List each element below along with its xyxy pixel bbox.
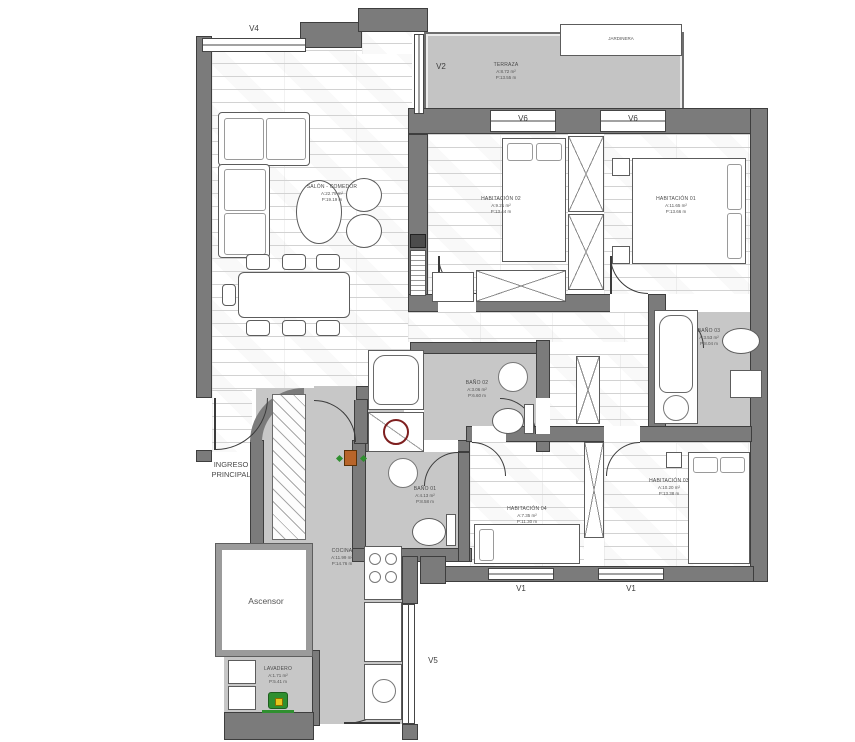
kitchen-perimeter: P:14.76 m [300, 561, 384, 567]
bedroom3-pillow-1 [693, 457, 718, 473]
wall-bath2-top [410, 342, 550, 354]
bath1-name: BAÑO 01 [380, 486, 470, 493]
bedroom1-nightstand-1 [612, 158, 630, 176]
armchair-2 [346, 214, 382, 248]
dining-chair-5 [282, 320, 306, 336]
door-gap-bath2 [536, 398, 550, 434]
bath1-perimeter: P:8.58 m [380, 499, 470, 505]
door-gap-entry [196, 398, 212, 450]
bedroom1-nightstand-2 [612, 246, 630, 264]
dining-chair-6 [316, 320, 340, 336]
planter-label: JARDINERA [560, 36, 682, 42]
bath2-name: BAÑO 02 [432, 380, 522, 387]
entrance-label-line1: INGRESO [200, 460, 262, 470]
bath2-tub [368, 350, 424, 410]
bath3-perimeter: P:8.04 m [664, 341, 754, 347]
bedroom2-label: HABITACIÓN 02 A:9.21 m² P:13.44 m [446, 196, 556, 214]
terrace-name: TERRAZA [456, 62, 556, 69]
bath3-tub-inner [659, 315, 693, 393]
bedroom4-name: HABITACIÓN 04 [472, 506, 582, 513]
window-label-v1a: V1 [488, 584, 554, 593]
washer-icon-base [262, 710, 294, 713]
window-label-v6b: V6 [600, 114, 666, 123]
shower-tray [368, 412, 424, 452]
bedroom3-closet [584, 442, 604, 538]
laundry-label: LAVADERO A:1.71 m² P:5.41 m [246, 666, 310, 684]
window-v1b [598, 568, 664, 580]
bedroom3-nightstand [666, 452, 682, 468]
window-label-v2: V2 [428, 62, 454, 71]
wall-wing-right-bottom [402, 724, 418, 740]
entry-door-leaf [214, 398, 216, 450]
bedroom2-closet-row [476, 270, 566, 302]
thermostat-icon [344, 450, 357, 466]
living-room-perimeter: P:19.19 m [282, 197, 382, 203]
bedroom2-closet-small [432, 272, 474, 302]
wall-laundry-bottom-block [224, 712, 314, 740]
laundry-name: LAVADERO [246, 666, 310, 673]
bedroom3-label: HABITACIÓN 03 A:10.20 m² P:13.38 m [614, 478, 724, 496]
laundry-door-leaf [344, 722, 400, 724]
window-label-v4: V4 [240, 24, 268, 33]
bath3-cabinet [730, 370, 762, 398]
laundry-perimeter: P:5.41 m [246, 679, 310, 685]
sofa-vertical [218, 164, 270, 258]
bedroom3-bed [688, 452, 750, 564]
door-gap-bedroom1 [610, 294, 648, 312]
bedroom4-label: HABITACIÓN 04 A:7.35 m² P:11.30 m [472, 506, 582, 524]
kitchen-counter [364, 602, 402, 662]
entrance-label-line2: PRINCIPAL [200, 470, 262, 480]
bath3-label: BAÑO 03 A:3.53 m² P:8.04 m [664, 328, 754, 346]
window-label-v6a: V6 [490, 114, 556, 123]
burner-2 [385, 553, 397, 565]
wall-top [358, 8, 428, 32]
dining-chair-4 [246, 320, 270, 336]
window-v4 [202, 38, 306, 52]
entrance-label: INGRESO PRINCIPAL [200, 460, 262, 480]
living-room-label: SALÓN - COMEDOR A:22.79 m² P:19.19 m [282, 184, 382, 202]
hall-closet [576, 356, 600, 424]
window-v2 [414, 34, 424, 114]
window-label-v5: V5 [420, 656, 446, 665]
sofa-horizontal [218, 112, 310, 166]
bath2-perimeter: P:6.60 m [432, 393, 522, 399]
kitchen-sink-bowl [372, 679, 396, 703]
bath2-toilet-tank [524, 404, 534, 434]
bedroom3-name: HABITACIÓN 03 [614, 478, 724, 485]
bedroom1-name: HABITACIÓN 01 [622, 196, 730, 203]
bedroom2-perimeter: P:13.44 m [446, 209, 556, 215]
kitchen-name: COCINA [300, 548, 384, 555]
sofa-cushion-4 [224, 213, 266, 255]
window-v5 [402, 604, 415, 724]
sofa-cushion-2 [266, 118, 306, 160]
window-v1a [488, 568, 554, 580]
bedroom1-pillow-2 [727, 213, 742, 259]
living-room-name: SALÓN - COMEDOR [282, 184, 382, 191]
bath3-tub-drain [663, 395, 689, 421]
bath1-toilet-bowl [412, 518, 446, 546]
dining-table [238, 272, 350, 318]
dining-chair-1 [246, 254, 270, 270]
bedroom2-pillow-2 [536, 143, 562, 161]
bath3-name: BAÑO 03 [664, 328, 754, 335]
bath2-toilet-bowl [492, 408, 524, 434]
bath2-tub-inner [373, 355, 419, 405]
wall-wing-right [402, 556, 418, 604]
bath1-sink [388, 458, 418, 488]
bedroom3-perimeter: P:13.38 m [614, 491, 724, 497]
terrace-label: TERRAZA A:8.72 m² P:13.55 m [456, 62, 556, 80]
bedroom4-perimeter: P:11.30 m [472, 519, 582, 525]
door-gap-bedroom3 [604, 426, 640, 442]
dining-chair-side [222, 284, 236, 306]
bedroom1-label: HABITACIÓN 01 A:11.65 m² P:13.66 m [622, 196, 730, 214]
electrical-box [410, 234, 426, 248]
wall-left-upper [196, 36, 212, 398]
bedroom2-pillow-1 [507, 143, 533, 161]
bedroom2-name: HABITACIÓN 02 [446, 196, 556, 203]
dining-chair-2 [282, 254, 306, 270]
bedroom1-perimeter: P:13.66 m [622, 209, 730, 215]
kitchen-pantry-hatch [272, 394, 306, 540]
burner-3 [369, 571, 381, 583]
bedroom4-pillow [479, 529, 494, 561]
door-gap-bath1 [424, 440, 458, 452]
bedroom4-bed [474, 524, 580, 564]
kitchen-sink-unit [364, 664, 402, 720]
door-gap-kitchen [314, 386, 356, 400]
wall-bath1-right [458, 452, 470, 562]
bath2-label: BAÑO 02 A:3.06 m² P:6.60 m [432, 380, 522, 398]
dining-chair-3 [316, 254, 340, 270]
kitchen-label: COCINA A:11.99 m² P:14.76 m [300, 548, 384, 566]
bath1-label: BAÑO 01 A:4.13 m² P:8.58 m [380, 486, 470, 504]
washer-icon [268, 692, 288, 709]
living-room-floor-top-notch [362, 30, 412, 54]
floor-plan: V4 V2 V6 V6 V1 V1 V5 TERRAZA A:8.72 m² P… [0, 0, 855, 742]
shower-no-symbol-icon [383, 419, 409, 445]
corridor-floor [408, 312, 650, 342]
burner-4 [385, 571, 397, 583]
wall-corner-step [420, 556, 446, 584]
elevator-label: Ascensor [224, 596, 308, 606]
bedroom2-wardrobe-2 [568, 214, 604, 290]
planter-name: JARDINERA [560, 36, 682, 42]
window-label-v1b: V1 [598, 584, 664, 593]
sofa-cushion-3 [224, 169, 266, 211]
wall-entry-boundary [250, 440, 264, 546]
wall-top-step [300, 22, 362, 48]
radiator [410, 250, 426, 296]
wall-bedrooms-top [408, 108, 754, 134]
washer-icon-center [275, 698, 283, 706]
bedroom3-pillow-2 [720, 457, 745, 473]
sofa-cushion-1 [224, 118, 264, 160]
bath1-toilet-tank [446, 514, 456, 546]
bedroom2-wardrobe-1 [568, 136, 604, 212]
terrace-perimeter: P:13.55 m [456, 75, 556, 81]
laundry-appliance-2 [228, 686, 256, 710]
